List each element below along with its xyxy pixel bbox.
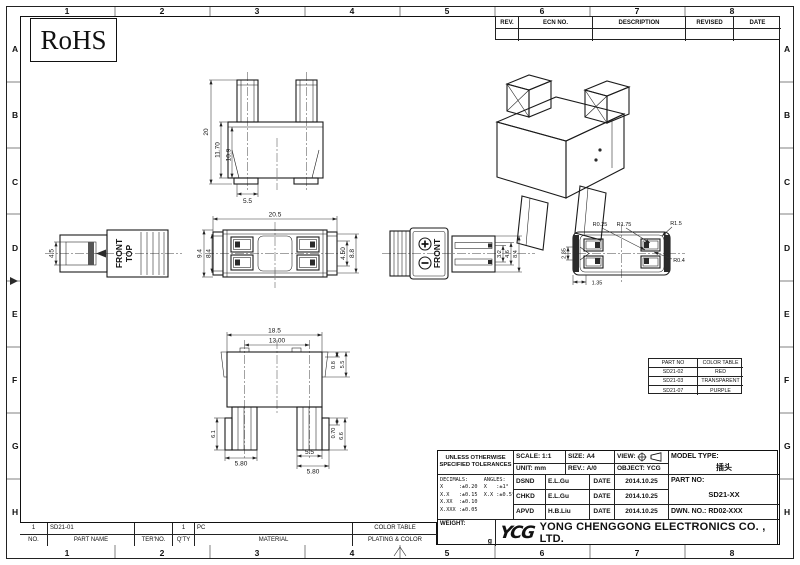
view-mating: R0.25 R1.75 R1.5 R0.4 2.35 1.35 bbox=[562, 221, 686, 287]
color-row-color: TRANSPARENT bbox=[698, 377, 743, 386]
parts-header-name: PART NAME bbox=[48, 535, 135, 547]
size-label: SIZE: bbox=[568, 453, 585, 460]
dim-label: 6.6 bbox=[339, 432, 345, 440]
rev-label: REV.: bbox=[568, 465, 585, 472]
view-isometric bbox=[497, 75, 629, 250]
apvd-date-label: DATE bbox=[590, 505, 615, 520]
part-no-label: PART NO: bbox=[669, 475, 779, 486]
dsnd-name: E.L.Gu bbox=[546, 475, 590, 490]
zone-row: F bbox=[12, 375, 17, 385]
zone-row: E bbox=[784, 309, 790, 319]
revision-header-desc: DESCRIPTION bbox=[593, 17, 686, 29]
material-cell: PC bbox=[195, 523, 353, 535]
scale-cell: SCALE: 1:1 bbox=[514, 451, 566, 464]
parts-header-qty: Q'TY bbox=[173, 535, 195, 547]
view-side-top-label: TOP bbox=[124, 245, 134, 263]
view-cell: VIEW: bbox=[615, 451, 669, 464]
dwn-no: DWN. NO.: RD02-XXX bbox=[669, 505, 779, 520]
zone-col: 1 bbox=[65, 548, 70, 558]
color-table-header-color: COLOR TABLE bbox=[698, 359, 743, 368]
dim-label: 0.8 bbox=[331, 361, 337, 369]
qty-cell: 1 bbox=[173, 523, 195, 535]
view-bottom: 18.5 13.00 0.8 5.5 6.1 0.70 6.6 5.80 bbox=[211, 328, 350, 476]
view-label: VIEW: bbox=[617, 453, 636, 460]
dim-label: 11.70 bbox=[215, 142, 222, 158]
zone-col: 3 bbox=[255, 6, 260, 16]
plus-icon bbox=[422, 241, 429, 248]
size-value: A4 bbox=[586, 453, 594, 460]
zone-row: C bbox=[784, 177, 790, 187]
revision-empty-cell bbox=[686, 29, 734, 41]
radius-label: R1.75 bbox=[617, 222, 632, 228]
zone-row: E bbox=[12, 309, 18, 319]
view-side-front-label: FRONT bbox=[114, 238, 124, 268]
radius-label: R0.4 bbox=[673, 258, 685, 264]
zone-row: D bbox=[12, 243, 18, 253]
zone-row: D bbox=[784, 243, 790, 253]
apvd-date: 2014.10.25 bbox=[615, 505, 669, 520]
tolerance-line: X.XXX :±0.05 bbox=[440, 507, 477, 515]
dim-label: 2.35 bbox=[562, 248, 568, 259]
model-type-value: 插头 bbox=[669, 462, 779, 475]
zone-col: 2 bbox=[160, 6, 165, 16]
object-value: YCG bbox=[647, 465, 661, 472]
rev-value: A/0 bbox=[587, 465, 597, 472]
parts-header-no: NO. bbox=[20, 535, 48, 547]
zone-row: C bbox=[12, 177, 18, 187]
tolerance-line: X :±0.20 X :±1° bbox=[440, 484, 509, 492]
scale-label: SCALE: bbox=[516, 453, 540, 460]
dim-label: 8.8 bbox=[349, 249, 356, 258]
unit-label: UNIT: bbox=[516, 465, 533, 472]
zone-row: A bbox=[12, 44, 18, 54]
apvd-name: H.B.Liu bbox=[546, 505, 590, 520]
object-label: OBJECT: bbox=[617, 465, 645, 472]
tolerance-line: X.X :±0.15 X.X :±0.5° bbox=[440, 492, 514, 500]
dim-label: 9.4 bbox=[197, 249, 204, 258]
apvd-role: APVD bbox=[514, 505, 546, 520]
zone-col: 8 bbox=[730, 548, 735, 558]
zone-col: 6 bbox=[540, 6, 545, 16]
parts-header-terno: TER'NO. bbox=[135, 535, 173, 547]
revision-header-date: DATE bbox=[734, 17, 781, 29]
revision-empty-cell bbox=[734, 29, 781, 41]
zone-col: 4 bbox=[350, 6, 355, 16]
zone-row: A bbox=[784, 44, 790, 54]
color-table-header-part: PART NO bbox=[649, 359, 698, 368]
parts-header-material: MATERIAL bbox=[195, 535, 353, 547]
color-row-part: SD21-02 bbox=[649, 368, 698, 377]
revision-header-ecn: ECN NO. bbox=[519, 17, 593, 29]
dim-label: 1.35 bbox=[592, 281, 603, 287]
tolerance-note: UNLESS OTHERWISE SPECIFIED TOLERANCES bbox=[438, 451, 514, 475]
zone-col: 8 bbox=[730, 6, 735, 16]
color-table: PART NO COLOR TABLE SD21-02 RED SD21-03 … bbox=[648, 358, 742, 394]
object-cell: OBJECT: YCG bbox=[615, 464, 669, 475]
parts-header-plating: PLATING & COLOR bbox=[353, 535, 437, 547]
part-no-cell: 1 bbox=[20, 523, 48, 535]
plating-cell: COLOR TABLE bbox=[353, 523, 437, 535]
direction-arrow-icon bbox=[96, 250, 106, 258]
weight-label: WEIGHT: bbox=[440, 521, 465, 527]
model-type-label: MODEL TYPE: bbox=[669, 451, 779, 462]
revision-empty-cell bbox=[496, 29, 519, 41]
scale-value: 1:1 bbox=[542, 453, 551, 460]
rev-cell: REV.: A/0 bbox=[566, 464, 615, 475]
dim-label: 0.70 bbox=[331, 428, 337, 439]
revision-header-rev: REV. bbox=[496, 17, 519, 29]
tolerance-note-line1: UNLESS OTHERWISE bbox=[445, 455, 505, 462]
dim-label: 10.9 bbox=[226, 148, 233, 161]
view-face-front-label: FRONT bbox=[432, 238, 442, 268]
revision-table: REV. ECN NO. DESCRIPTION REVISED DATE bbox=[495, 16, 780, 40]
company-bar: YCG YONG CHENGGONG ELECTRONICS CO. , LTD… bbox=[496, 520, 779, 547]
dim-label: 5.5 bbox=[305, 449, 314, 456]
view-top-profile: 20 11.70 10.9 5.5 bbox=[203, 72, 323, 205]
dim-label: 3.2 bbox=[497, 250, 503, 258]
left-center-mark-icon bbox=[10, 277, 18, 285]
dim-label: 20.5 bbox=[269, 212, 282, 219]
dim-label: 4.50 bbox=[340, 247, 347, 260]
view-front: 20.5 9.4 8.4 4.50 8.8 bbox=[197, 212, 360, 289]
revision-empty-cell bbox=[593, 29, 686, 41]
zone-row: G bbox=[12, 441, 19, 451]
unit-cell: UNIT: mm bbox=[514, 464, 566, 475]
dim-label: 5.80 bbox=[235, 461, 248, 468]
parts-table: 1 SD21-01 1 PC COLOR TABLE NO. PART NAME… bbox=[20, 522, 437, 545]
zone-row: G bbox=[784, 441, 791, 451]
weight-cell: WEIGHT: g bbox=[438, 520, 496, 547]
color-row-color: RED bbox=[698, 368, 743, 377]
zone-row: B bbox=[12, 110, 18, 120]
zone-col: 5 bbox=[445, 6, 450, 16]
color-row-part: SD21-07 bbox=[649, 386, 698, 395]
zone-row: B bbox=[784, 110, 790, 120]
revision-empty-cell bbox=[519, 29, 593, 41]
zone-col: 1 bbox=[65, 6, 70, 16]
chkd-name: E.L.Gu bbox=[546, 490, 590, 505]
zone-row: H bbox=[784, 507, 790, 517]
revision-header-revised: REVISED bbox=[686, 17, 734, 29]
color-row-color: PURPLE bbox=[698, 386, 743, 395]
tolerance-note-line2: SPECIFIED TOLERANCES bbox=[439, 462, 511, 469]
zone-col: 6 bbox=[540, 548, 545, 558]
rohs-label: RoHS bbox=[40, 25, 106, 56]
part-name-cell: SD21-01 bbox=[48, 523, 135, 535]
rohs-mark: RoHS bbox=[30, 18, 117, 62]
zone-row: H bbox=[12, 507, 18, 517]
dim-label: 4.5 bbox=[49, 249, 56, 258]
company-name: YONG CHENGGONG ELECTRONICS CO. , LTD. bbox=[540, 521, 779, 545]
radius-label: R1.5 bbox=[670, 221, 682, 227]
zone-col: 7 bbox=[635, 6, 640, 16]
zone-col: 3 bbox=[255, 548, 260, 558]
chkd-date-label: DATE bbox=[590, 490, 615, 505]
dsnd-role: DSND bbox=[514, 475, 546, 490]
dsnd-date-label: DATE bbox=[590, 475, 615, 490]
dim-label: 8.4 bbox=[206, 249, 213, 258]
view-face: FRONT 3.2 4.6 8.4 bbox=[382, 228, 535, 279]
dim-label: 5.5 bbox=[243, 198, 252, 205]
tolerance-line: DECIMALS: ANGLES: bbox=[440, 477, 506, 485]
size-cell: SIZE: A4 bbox=[566, 451, 615, 464]
dim-label: 13.00 bbox=[269, 338, 286, 345]
part-no-value: SD21-XX bbox=[669, 486, 779, 505]
dim-label: 4.6 bbox=[505, 250, 511, 258]
tolerance-values: DECIMALS: ANGLES: X :±0.20 X :±1° X.X :±… bbox=[438, 475, 514, 520]
radius-label: R0.25 bbox=[593, 222, 608, 228]
projection-symbol-icon bbox=[637, 452, 663, 462]
dsnd-date: 2014.10.25 bbox=[615, 475, 669, 490]
ter-no-cell bbox=[135, 523, 173, 535]
tolerance-line: X.XX :±0.10 bbox=[440, 499, 477, 507]
view-side: FRONT TOP 4.5 bbox=[45, 230, 182, 277]
zone-col: 5 bbox=[445, 548, 450, 558]
dim-label: 18.5 bbox=[268, 328, 281, 335]
dim-label: 5.80 bbox=[307, 469, 320, 476]
dim-label: 8.4 bbox=[513, 250, 519, 258]
drawing-sheet: .ol{fill:none;stroke:#1b1b1b;stroke-widt… bbox=[0, 0, 800, 565]
unit-value: mm bbox=[534, 465, 546, 472]
company-logo: YCG bbox=[499, 523, 535, 543]
zone-col: 2 bbox=[160, 548, 165, 558]
chkd-role: CHKD bbox=[514, 490, 546, 505]
dim-label: 6.1 bbox=[211, 430, 217, 438]
zone-row: F bbox=[784, 375, 789, 385]
chkd-date: 2014.10.25 bbox=[615, 490, 669, 505]
zone-col: 7 bbox=[635, 548, 640, 558]
zone-col: 4 bbox=[350, 548, 355, 558]
weight-unit: g bbox=[488, 538, 492, 545]
dim-label: 20 bbox=[203, 128, 210, 136]
title-block: UNLESS OTHERWISE SPECIFIED TOLERANCES DE… bbox=[437, 450, 778, 545]
dim-label: 5.5 bbox=[340, 361, 346, 369]
color-row-part: SD21-03 bbox=[649, 377, 698, 386]
